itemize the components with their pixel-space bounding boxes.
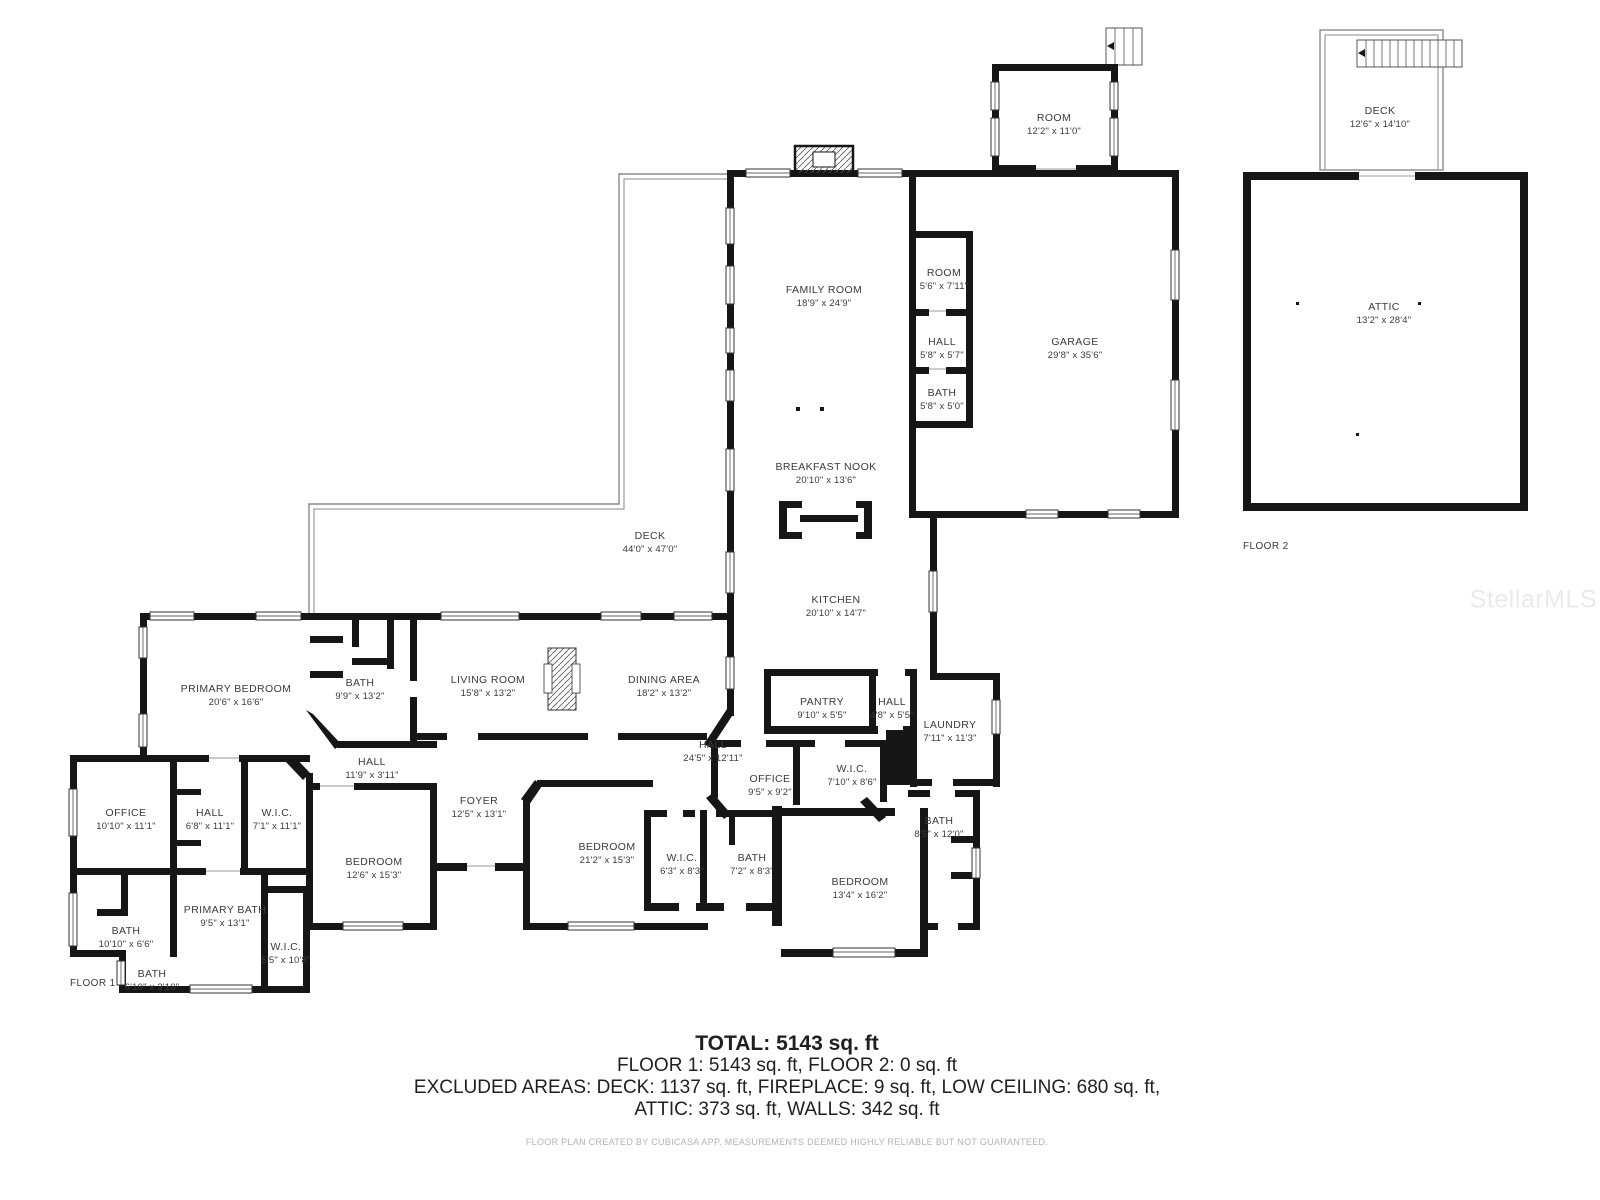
deck-outline-main	[309, 174, 730, 613]
floor-2-tag: FLOOR 2	[1243, 541, 1289, 552]
stairs-icon-top	[1106, 28, 1142, 65]
living-room-fireplace-icon	[544, 648, 580, 710]
floor-plan-drawing	[0, 0, 1600, 1200]
area-summary: TOTAL: 5143 sq. ft FLOOR 1: 5143 sq. ft,…	[414, 1032, 1160, 1121]
floor-plan-page: { "watermark": "StellarMLS", "floor_labe…	[0, 0, 1600, 1200]
cubicasa-credit-text: FLOOR PLAN CREATED BY CUBICASA APP. MEAS…	[526, 1137, 1048, 1147]
stairs-icon-deck	[1357, 40, 1462, 67]
walls-upper-block	[704, 64, 1179, 748]
stellar-mls-watermark: StellarMLS	[1470, 586, 1597, 615]
floor-areas-text: FLOOR 1: 5143 sq. ft, FLOOR 2: 0 sq. ft	[414, 1055, 1160, 1077]
walls-lower-house	[70, 407, 1000, 993]
excluded-areas-text-2: ATTIC: 373 sq. ft, WALLS: 342 sq. ft	[414, 1099, 1160, 1121]
floor-1-tag: FLOOR 1	[70, 978, 116, 989]
door-thresholds	[206, 169, 1076, 871]
walls-attic	[1243, 172, 1528, 511]
total-area-text: TOTAL: 5143 sq. ft	[414, 1032, 1160, 1055]
fireplace-chimney-icon	[795, 146, 853, 174]
excluded-areas-text-1: EXCLUDED AREAS: DECK: 1137 sq. ft, FIREP…	[414, 1077, 1160, 1099]
kitchen-fireplace-icon	[779, 501, 872, 539]
